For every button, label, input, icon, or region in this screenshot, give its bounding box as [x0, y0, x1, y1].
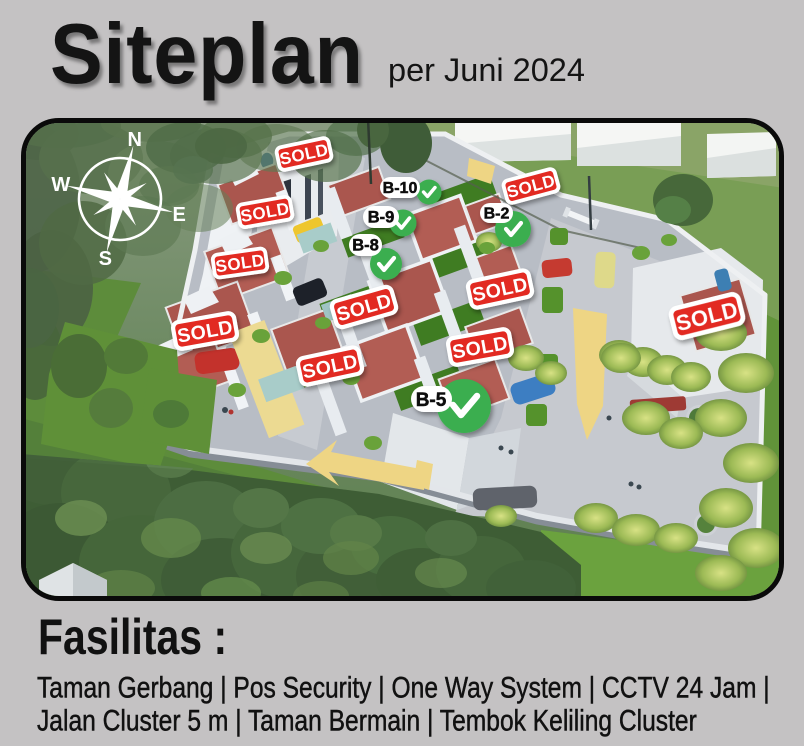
- svg-text:B-9: B-9: [368, 209, 395, 227]
- svg-text:E: E: [173, 204, 186, 226]
- svg-text:B-2: B-2: [484, 206, 510, 223]
- svg-text:B-10: B-10: [383, 180, 418, 197]
- svg-text:S: S: [99, 248, 112, 270]
- svg-text:N: N: [128, 129, 142, 151]
- svg-text:W: W: [51, 174, 70, 196]
- svg-text:B-8: B-8: [352, 237, 379, 255]
- svg-text:B-5: B-5: [416, 390, 447, 411]
